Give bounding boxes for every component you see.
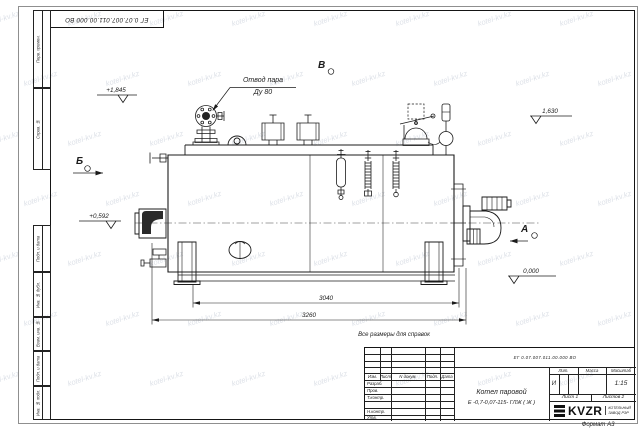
product-name-line1: Котел паровой: [476, 389, 526, 396]
dimension-3260-text: 3260: [288, 312, 330, 319]
view-label-v: В: [318, 60, 325, 71]
titleblock-gridline: [391, 348, 392, 421]
company-logo-cell: KVZR КОТЕЛЬНЫЙ ЗАВОД РЭР: [549, 401, 636, 422]
titleblock-gridline: [440, 348, 441, 421]
manhole: [229, 242, 251, 259]
elevation-1845: +1,845: [95, 87, 137, 94]
elevation-0592: +0,592: [77, 213, 121, 220]
col-header-izm: Изм.: [365, 373, 380, 380]
reference-note: Все размеры для справок: [330, 332, 430, 338]
title-block: Изм. Лист N докум. Подп. Дата Разраб. Пр…: [364, 347, 635, 420]
hatch-boxes: [262, 115, 319, 145]
elevation-0000: 0,000: [506, 268, 556, 275]
row-prov: Пров.: [365, 387, 391, 394]
row-tkontr: Т.контр.: [365, 394, 391, 401]
product-name-cell: Котел паровой Е -0,7-0,07-115- ГЛЖ ( Ж ): [454, 367, 549, 421]
col-header-data: Дата: [440, 373, 454, 380]
titleblock-gridline: [365, 367, 454, 368]
kvzr-logo-text: KVZR: [568, 404, 602, 418]
col-header-podp: Подп.: [425, 373, 440, 380]
support-legs: [174, 242, 447, 285]
titleblock-gridline: [425, 348, 426, 421]
titleblock-gridline: [365, 361, 454, 362]
steam-outlet-label-line1: Отвод пара: [231, 77, 295, 84]
titleblock-gridline: [365, 401, 454, 402]
steam-outlet-valve: [193, 106, 224, 146]
lifting-lug: [228, 136, 246, 145]
kvzr-logo-subtext-line2: ЗАВОД РЭР: [608, 411, 631, 415]
titleblock-gridline: [568, 374, 569, 394]
right-flange-strip: [451, 184, 466, 266]
row-utv: Утв.: [365, 415, 391, 422]
kvzr-logo-subtext: КОТЕЛЬНЫЙ ЗАВОД РЭР: [605, 406, 631, 415]
dimension-3040: [193, 268, 459, 308]
elevation-1630: 1,630: [528, 108, 572, 115]
sheets-total: Листов 2: [591, 394, 636, 401]
burner: [463, 197, 511, 244]
row-razrab: Разраб.: [365, 380, 391, 387]
lit-value: И: [549, 374, 559, 394]
view-arrow-a: [510, 239, 528, 244]
drawing-sheet: kotel-kv.kzkotel-kv.kzkotel-kv.kzkotel-k…: [0, 0, 644, 430]
steam-outlet-label-line2: Ду 80: [231, 89, 295, 96]
format-note: Формат А3: [560, 422, 636, 428]
product-name-line2: Е -0,7-0,07-115- ГЛЖ ( Ж ): [468, 400, 535, 406]
elbow-pipe: [135, 209, 166, 238]
level-gauges: [337, 149, 400, 200]
dimension-3040-text: 3040: [306, 295, 346, 302]
col-header-ndocum: N докум.: [391, 373, 425, 380]
doc-number: ЕГ 0.07.007.011.00.000 ВО: [454, 348, 636, 367]
base-frame: [178, 275, 455, 281]
titleblock-gridline: [365, 354, 454, 355]
boiler-body: [168, 155, 454, 272]
safety-valve: [400, 104, 440, 146]
col-header-list: Лист: [380, 373, 391, 380]
scale-value: 1:15: [606, 374, 636, 394]
kvzr-logo-icon: [554, 405, 565, 417]
sheet-number: Лист 1: [549, 394, 591, 401]
mass-header: Масса: [578, 367, 606, 374]
left-fittings: [141, 153, 168, 268]
titleblock-gridline: [559, 374, 560, 394]
view-label-a: А: [521, 224, 528, 235]
view-label-b: Б: [76, 156, 83, 167]
pressure-gauge: [439, 104, 453, 155]
